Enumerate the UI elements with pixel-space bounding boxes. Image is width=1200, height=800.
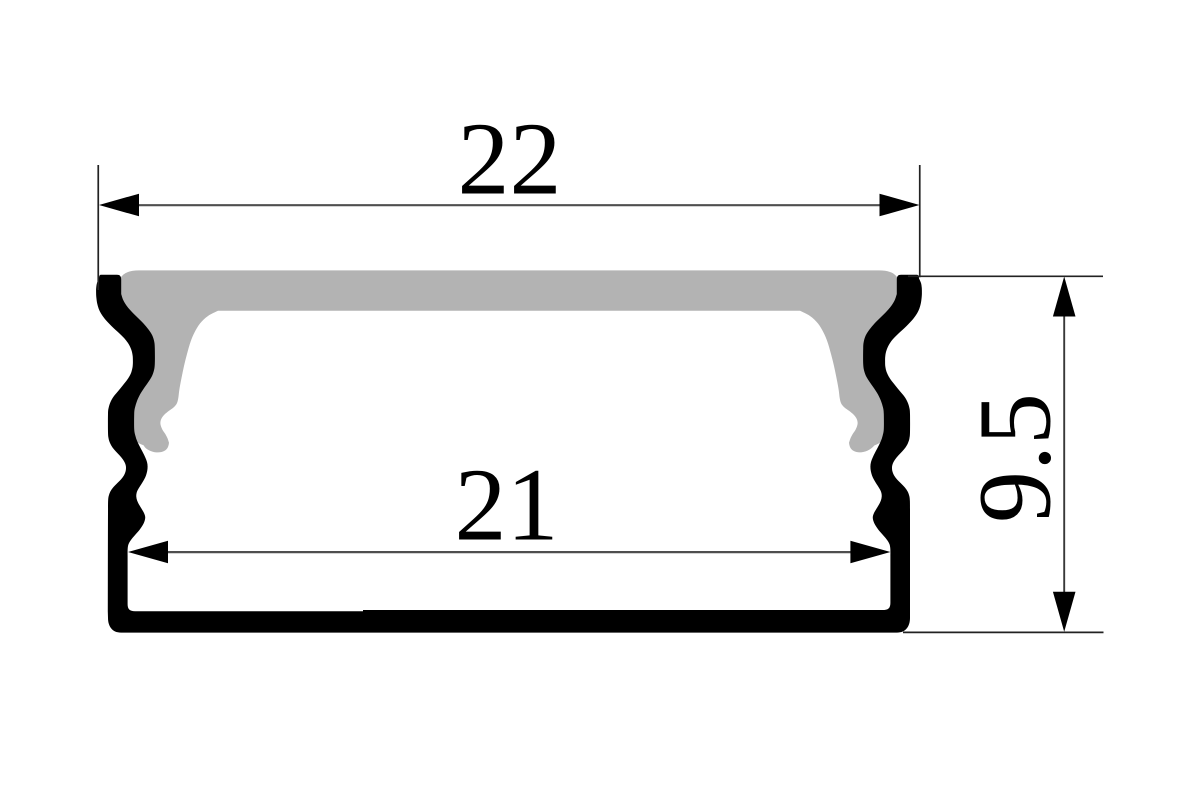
svg-text:21: 21 [455, 448, 559, 563]
svg-text:22: 22 [458, 102, 562, 217]
svg-text:9.5: 9.5 [958, 393, 1073, 523]
